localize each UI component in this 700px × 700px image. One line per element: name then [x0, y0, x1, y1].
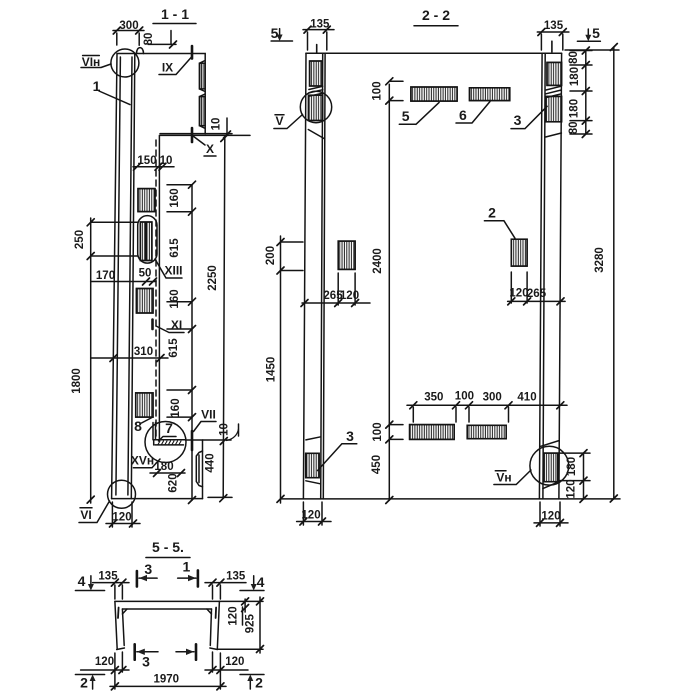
- svg-text:120: 120: [509, 288, 528, 300]
- svg-text:1970: 1970: [154, 674, 180, 686]
- svg-text:615: 615: [169, 238, 181, 258]
- svg-text:3280: 3280: [594, 247, 606, 273]
- svg-text:615: 615: [168, 338, 180, 358]
- svg-text:VI: VI: [80, 508, 91, 522]
- svg-text:2250: 2250: [207, 265, 219, 291]
- svg-text:120: 120: [541, 511, 560, 523]
- svg-text:135: 135: [544, 20, 564, 32]
- svg-text:XI: XI: [171, 318, 182, 332]
- svg-text:4: 4: [257, 574, 265, 590]
- svg-text:3: 3: [144, 561, 152, 577]
- svg-text:VII: VII: [201, 408, 216, 422]
- svg-text:180: 180: [568, 99, 580, 118]
- svg-text:180: 180: [569, 67, 581, 86]
- svg-text:4: 4: [78, 573, 86, 589]
- svg-text:170: 170: [96, 270, 115, 282]
- svg-text:3: 3: [346, 428, 354, 444]
- svg-text:150: 150: [137, 155, 156, 167]
- svg-text:2: 2: [255, 675, 263, 691]
- svg-text:8: 8: [134, 418, 142, 434]
- svg-text:3: 3: [142, 654, 150, 670]
- svg-text:2 - 2: 2 - 2: [422, 7, 450, 23]
- svg-text:1 - 1: 1 - 1: [161, 6, 189, 22]
- svg-text:5: 5: [402, 108, 410, 124]
- svg-text:100: 100: [372, 81, 384, 100]
- svg-text:450: 450: [371, 455, 383, 474]
- svg-text:80: 80: [568, 51, 580, 64]
- svg-text:10: 10: [211, 118, 223, 131]
- svg-text:X: X: [206, 142, 214, 156]
- svg-text:100: 100: [372, 422, 384, 441]
- svg-text:440: 440: [205, 453, 217, 472]
- svg-text:10: 10: [219, 423, 231, 436]
- svg-text:120: 120: [95, 656, 114, 668]
- svg-text:100: 100: [455, 391, 474, 403]
- svg-text:6: 6: [459, 107, 467, 123]
- svg-text:160: 160: [170, 398, 182, 417]
- svg-text:250: 250: [74, 230, 86, 249]
- svg-text:160: 160: [169, 289, 181, 308]
- svg-text:1800: 1800: [71, 368, 83, 394]
- svg-text:10: 10: [160, 155, 173, 167]
- svg-text:925: 925: [245, 614, 257, 634]
- svg-text:410: 410: [517, 392, 536, 404]
- svg-text:5: 5: [271, 25, 279, 41]
- svg-text:3: 3: [514, 112, 522, 128]
- svg-text:80: 80: [568, 122, 580, 135]
- svg-text:2: 2: [488, 205, 496, 221]
- svg-text:120: 120: [228, 606, 240, 625]
- svg-text:Vн: Vн: [496, 471, 511, 485]
- svg-text:180: 180: [566, 457, 578, 476]
- svg-text:IX: IX: [162, 61, 173, 75]
- svg-text:V: V: [275, 114, 283, 128]
- svg-text:5: 5: [592, 25, 600, 41]
- svg-text:200: 200: [265, 246, 277, 265]
- svg-text:5 - 5.: 5 - 5.: [152, 539, 184, 555]
- svg-text:310: 310: [134, 346, 153, 358]
- svg-text:1: 1: [183, 559, 191, 575]
- svg-text:300: 300: [483, 392, 502, 404]
- svg-text:135: 135: [226, 571, 246, 583]
- svg-text:2400: 2400: [372, 248, 384, 274]
- svg-text:7: 7: [165, 420, 173, 436]
- svg-text:XVн: XVн: [131, 454, 154, 468]
- svg-text:160: 160: [169, 188, 181, 207]
- svg-text:120: 120: [566, 479, 578, 498]
- svg-text:120: 120: [225, 656, 244, 668]
- svg-text:350: 350: [424, 392, 443, 404]
- svg-text:120: 120: [340, 290, 359, 302]
- svg-text:XIII: XIII: [164, 264, 182, 278]
- svg-text:135: 135: [98, 571, 118, 583]
- svg-text:2: 2: [80, 675, 88, 691]
- svg-text:1450: 1450: [266, 357, 278, 383]
- svg-text:80: 80: [143, 33, 155, 46]
